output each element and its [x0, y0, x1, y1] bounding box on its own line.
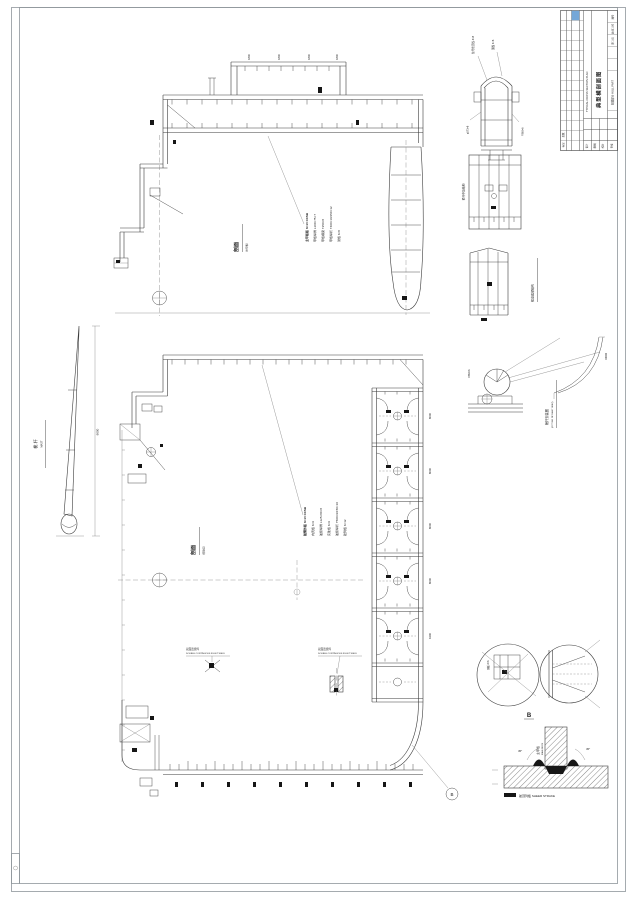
section-letter-b: B: [527, 713, 532, 719]
detail-mast-seat: FB60×6 桅杆安装图 (FITTING OF MAST SEAT) R900…: [468, 337, 608, 428]
detail4-title-cn: 桅杆安装图: [544, 409, 549, 425]
note-line: 主甲板板 δ=10 CCSB: [304, 212, 309, 242]
mast-dim: 9000: [96, 428, 100, 435]
tb-cell-1: 图号: [611, 14, 615, 19]
view-label-sub: (主甲板): [245, 243, 249, 252]
drawing-sheet: 典型横剖面图 TYPICAL CROSS SECTION PLAN 船体部分 H…: [0, 0, 635, 899]
section-view-top: 1800 1800 1800 1800 主甲板板 δ=10 CCSB 甲板纵骨 …: [114, 54, 430, 316]
tb-strip-1: 标记: [561, 142, 565, 147]
detail3-side-label: 桅座底部结构: [530, 284, 535, 302]
weld-note-line: DOUBLE CONTINUOUS FILLET WELD: [186, 653, 225, 655]
notes-block-1: 主甲板板 δ=10 CCSB 甲板纵骨 L100×75×7 甲板横梁 T250×…: [268, 136, 341, 242]
note-line: 内壳板 δ=9: [310, 521, 315, 536]
section-view-main: B 8000 8000 8000 8000 6300 舷侧外板 δ=10 CCS…: [118, 355, 458, 800]
notes-block-2: 舷侧外板 δ=10 CCSB 内壳板 δ=9 舷侧纵骨 L125×80×8 实肋…: [262, 365, 347, 537]
weld-note-line: 双面连续焊: [186, 647, 199, 651]
detail1-callout-1: 信号桅顶板 δ=8: [471, 35, 475, 54]
weld-deck-label-en: MAIN DECK: [541, 742, 544, 755]
weld-note-callout-1: 双面连续焊 DOUBLE CONTINUOUS FILLET WELD: [186, 647, 230, 672]
tb-role-3: 校对: [601, 143, 605, 148]
title-block: 典型横剖面图 TYPICAL CROSS SECTION PLAN 船体部分 H…: [561, 11, 618, 151]
detail-mast-top: 信号桅顶板 δ=8 围板 δ=6 φ273×8 FB60×6: [467, 35, 525, 160]
weld-note-line: DOUBLE CONTINUOUS FILLET WELD: [318, 653, 357, 655]
corner-mark-box: [12, 854, 20, 884]
drawing-title-en: TYPICAL CROSS SECTION PLAN: [585, 71, 589, 112]
detail-mast-bottom: 桅座底部结构: [470, 248, 538, 321]
corner-mark-icon: [14, 866, 18, 870]
mast-profile: 9000 桅 杆 MAST: [32, 326, 100, 536]
tb-role-1: 设计: [585, 143, 589, 148]
detail-mast-mid: 桅杆中段结构: [462, 155, 522, 229]
drawing-title-cn: 典型横剖面图: [595, 71, 603, 108]
detail1-callout-2: 围板 δ=6: [491, 39, 495, 50]
dim-right-3: 8000: [428, 522, 432, 529]
tb-strip-2: 处数: [561, 132, 565, 137]
note-line: 实肋板 δ=9: [326, 521, 331, 536]
view-label-1: 剖面 (主甲板): [233, 224, 249, 252]
revision-highlight-cell[interactable]: [572, 11, 580, 20]
weld-deck-label-cn: 主甲板: [535, 746, 540, 755]
dim-right-2: 8000: [428, 467, 432, 474]
weld-detail: 主甲板 MAIN DECK 45° 45° 舷顶列板 SHEER STRAKE: [492, 727, 608, 798]
note-line: 肘板 δ=8: [336, 230, 341, 242]
detail-ref-b: B: [450, 792, 453, 797]
dim-top-1: 1800: [247, 54, 251, 60]
note-line: 甲板纵桁 T400×10/150×12: [328, 206, 333, 242]
page-frame: [12, 8, 626, 892]
weld-note-line: 双面连续焊: [318, 647, 331, 651]
mast-label-cn: 桅 杆: [32, 438, 39, 448]
drawing-canvas: 典型横剖面图 TYPICAL CROSS SECTION PLAN 船体部分 H…: [0, 0, 635, 899]
view-label-2: 剖面 (货舱区): [190, 527, 206, 555]
note-line: 舷侧纵桁 T500×9/150×10: [334, 502, 339, 536]
arc-radius-label: R9000: [605, 352, 608, 360]
note-line: 舭列板 δ=12: [342, 519, 347, 536]
weld-angle-left: 45°: [518, 749, 522, 753]
circle-a-dim: 围板 δ=6: [486, 660, 490, 670]
detail2-label: 桅杆中段结构: [462, 183, 466, 200]
note-line: 甲板横梁 T250×8: [320, 219, 325, 242]
bottom-fitting-marks: [175, 782, 412, 787]
dim-top-2: 1800: [277, 54, 281, 60]
detail-circle-b: B: [524, 640, 600, 719]
weld-sheer-label: 舷顶列板 SHEER STRAKE: [519, 793, 555, 798]
detail1-left-label: φ273×8: [467, 125, 470, 134]
mast-label-en: MAST: [40, 440, 44, 448]
tb-cell-2: 比例 1:50: [611, 23, 615, 34]
dim-top-3: 1800: [307, 54, 311, 60]
title-block-sub: 船体部分 HULL PART: [611, 80, 615, 105]
note-line: 甲板纵骨 L100×75×7: [312, 214, 317, 242]
tb-role-4: 审核: [610, 143, 614, 148]
tb-role-2: 制图: [593, 143, 597, 148]
detail4-small-label: FB60×6: [468, 369, 471, 378]
detail4-title-en: (FITTING OF MAST SEAT): [551, 401, 554, 428]
dim-right-4: 8000: [428, 577, 432, 584]
weld-note-callout-2: 双面连续焊 DOUBLE CONTINUOUS FILLET WELD: [318, 647, 362, 698]
view-label-text: 剖面: [190, 545, 197, 555]
view-label-text: 剖面: [233, 242, 240, 252]
web-frame-column: B 8000 8000 8000 8000 6300: [372, 360, 458, 801]
weld-angle-right: 45°: [586, 747, 590, 751]
detail1-right-label: FB60×6: [522, 127, 525, 136]
tb-cell-3: 第 1 页: [611, 37, 615, 45]
dim-right-1: 8000: [428, 412, 432, 419]
note-line: 舷侧外板 δ=10 CCSB: [302, 506, 307, 537]
dim-top-4: 1800: [335, 54, 339, 60]
detail-circle-a: 围板 δ=6: [477, 644, 539, 706]
note-line: 舷侧纵骨 L125×80×8: [318, 508, 323, 536]
view-label-sub: (货舱区): [202, 546, 206, 555]
dim-right-5: 6300: [428, 632, 432, 639]
